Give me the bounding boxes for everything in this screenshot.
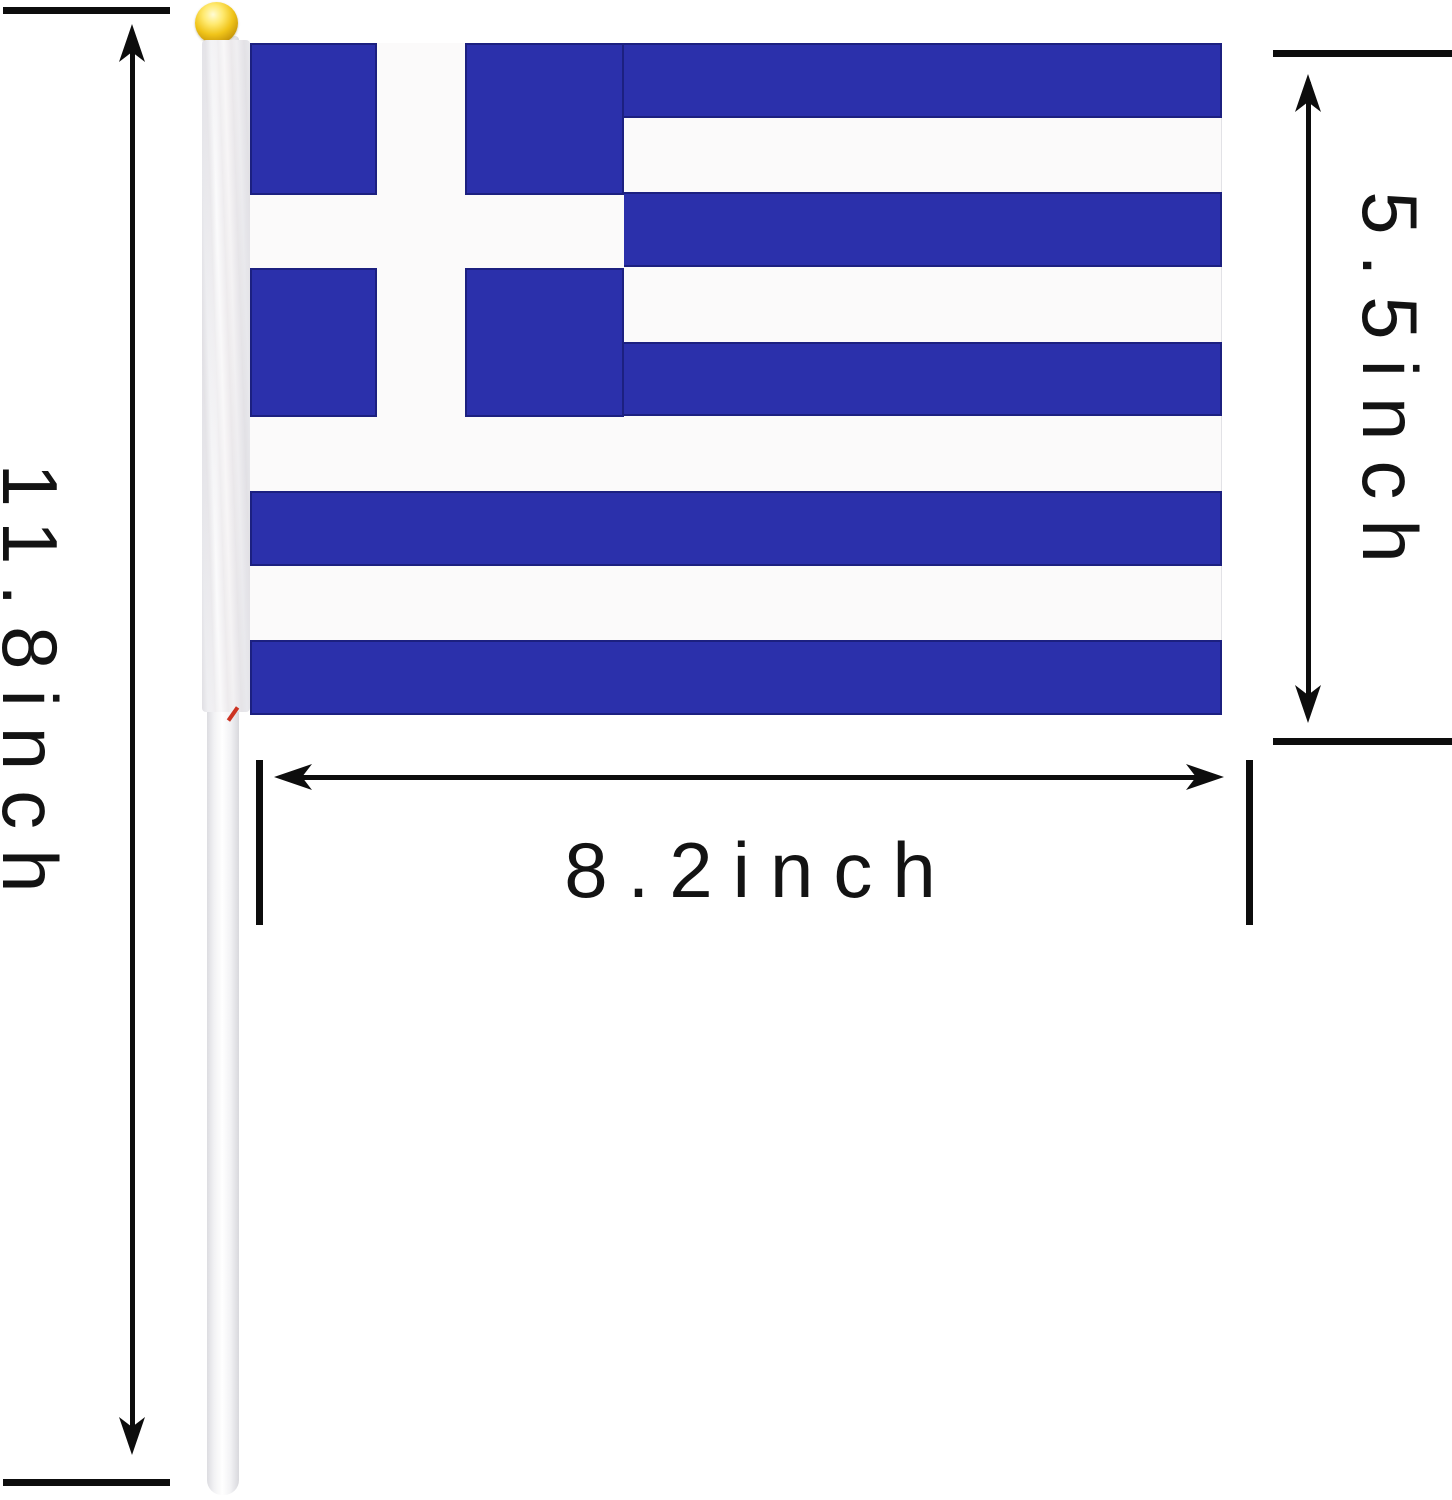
pole-finial-ball (195, 2, 238, 44)
greece-flag (250, 43, 1222, 715)
flag-height-label: 5.5inch (1351, 191, 1429, 583)
canton-quadrant (465, 43, 624, 195)
flag-canton-cross (250, 43, 624, 417)
flag-sleeve (202, 40, 250, 712)
product-diagram-canvas: 11.8inch 5.5inch 8.2inch (0, 0, 1452, 1500)
arrow-down-icon (1295, 685, 1321, 723)
dimension-tick-bottom-right (1273, 738, 1452, 745)
arrow-up-icon (1295, 74, 1321, 112)
arrow-up-icon (119, 24, 145, 62)
dimension-tick-left (256, 760, 263, 925)
dimension-tick-right (1246, 760, 1253, 925)
canton-quadrant (250, 268, 377, 417)
arrow-right-icon (1186, 764, 1224, 790)
canton-quadrant (250, 43, 377, 195)
dimension-tick-top-right (1273, 50, 1452, 57)
flag-width-label: 8.2inch (564, 831, 956, 909)
arrow-down-icon (119, 1417, 145, 1455)
pole-height-dimension-line (130, 34, 135, 1446)
flag-width-dimension-line (302, 775, 1196, 780)
pole-height-label: 11.8inch (0, 463, 69, 912)
flag-height-dimension-line (1306, 82, 1311, 712)
dimension-tick-top-left (3, 7, 170, 14)
flag-stripe-blue (250, 491, 1222, 566)
dimension-tick-bottom-left (3, 1479, 170, 1486)
arrow-left-icon (274, 764, 312, 790)
canton-quadrant (465, 268, 624, 417)
flag-stripe-blue (250, 640, 1222, 715)
